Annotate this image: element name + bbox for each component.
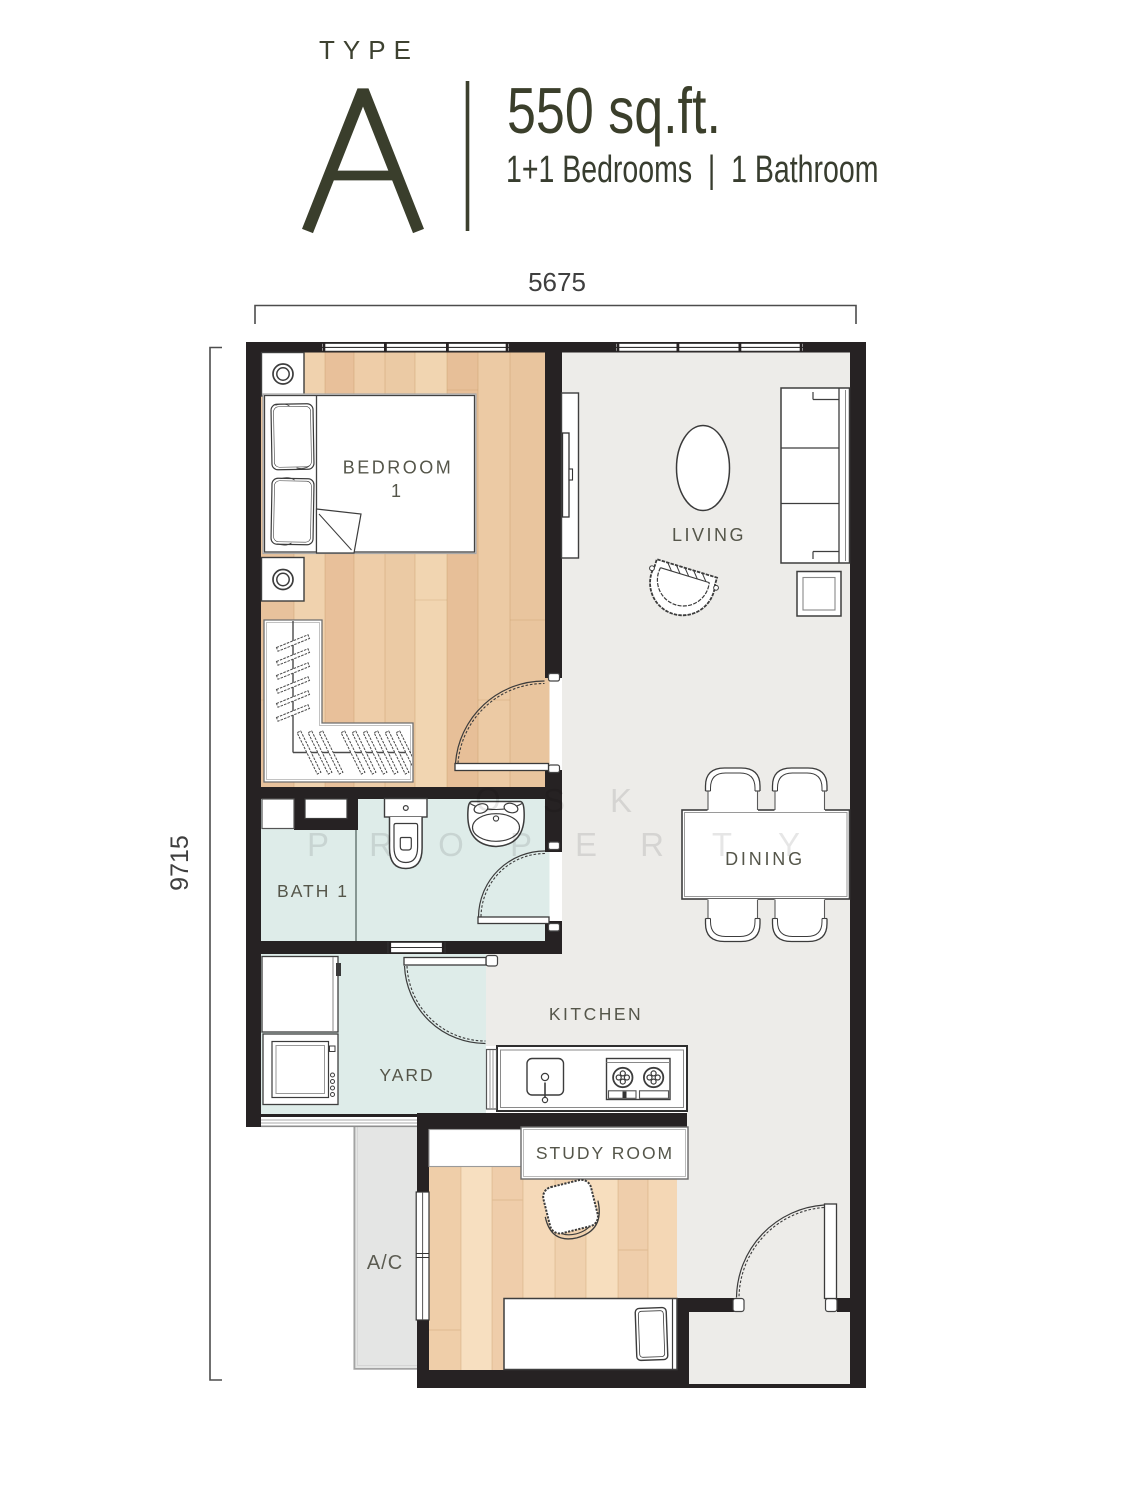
- svg-text:R: R: [640, 826, 664, 863]
- svg-text:BEDROOM: BEDROOM: [343, 458, 454, 478]
- svg-text:O: O: [438, 826, 464, 863]
- svg-text:P: P: [510, 826, 532, 863]
- svg-text:BATH 1: BATH 1: [277, 881, 349, 901]
- svg-text:5675: 5675: [528, 267, 586, 297]
- svg-text:T: T: [712, 826, 732, 863]
- svg-text:A/C: A/C: [367, 1252, 403, 1274]
- svg-text:K: K: [610, 782, 632, 819]
- svg-text:1: 1: [391, 481, 403, 501]
- svg-text:1+1 Bedrooms | 1 Bathroom: 1+1 Bedrooms | 1 Bathroom: [506, 149, 878, 191]
- svg-text:9715: 9715: [166, 835, 194, 891]
- svg-text:S: S: [543, 782, 565, 819]
- svg-text:TYPE: TYPE: [319, 35, 419, 65]
- svg-text:E: E: [575, 826, 597, 863]
- svg-text:STUDY ROOM: STUDY ROOM: [536, 1143, 674, 1163]
- svg-text:550 sq.ft.: 550 sq.ft.: [507, 76, 721, 148]
- svg-text:P: P: [307, 826, 329, 863]
- svg-text:O: O: [475, 781, 501, 818]
- svg-text:R: R: [369, 826, 393, 863]
- svg-text:KITCHEN: KITCHEN: [549, 1004, 643, 1024]
- svg-text:YARD: YARD: [379, 1065, 434, 1085]
- svg-text:Y: Y: [778, 826, 800, 863]
- svg-text:LIVING: LIVING: [672, 525, 746, 545]
